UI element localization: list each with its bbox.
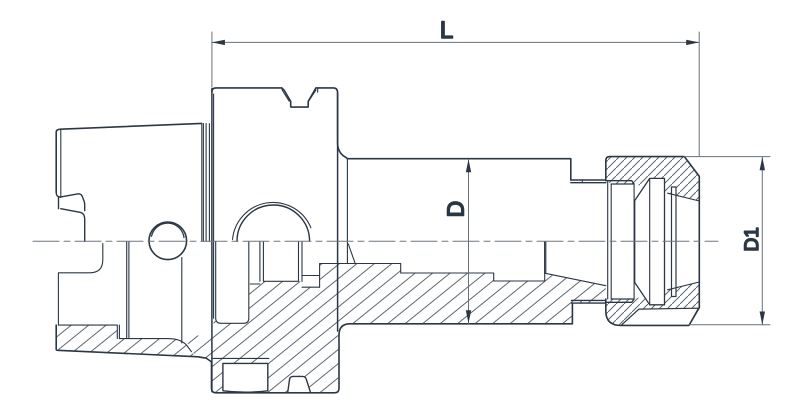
svg-text:D1: D1 [742,227,763,251]
svg-text:D: D [443,201,469,218]
svg-text:L: L [440,17,453,44]
